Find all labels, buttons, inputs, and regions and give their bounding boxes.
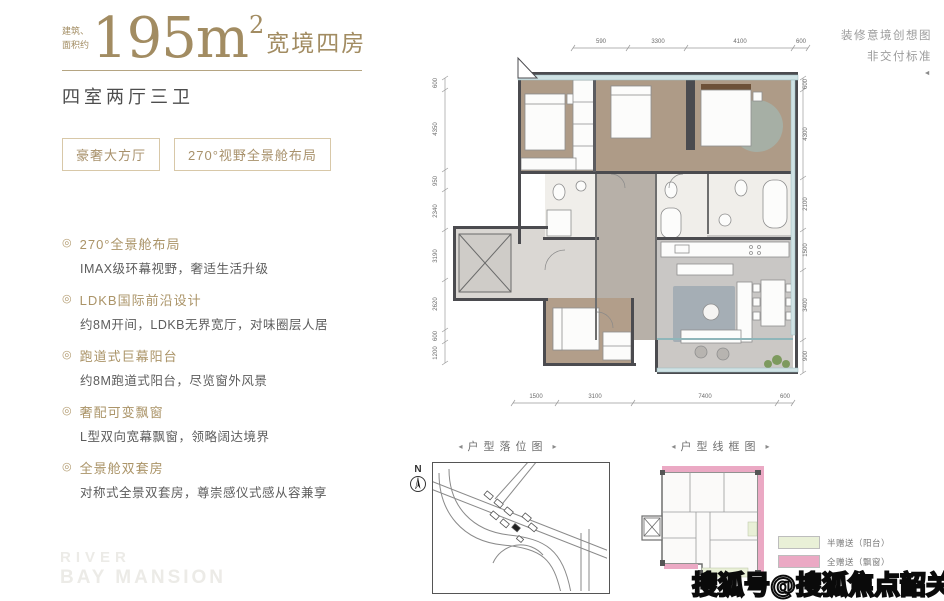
brand-watermark: RIVER BAY MANSION bbox=[60, 549, 226, 590]
compass-icon: N bbox=[408, 464, 428, 498]
dim-label: 590 bbox=[586, 39, 616, 45]
dim-label: 7400 bbox=[690, 394, 720, 400]
feature-item: ◎270°全景舱布局 IMAX级环幕视野，奢适生活升级 bbox=[62, 234, 362, 277]
bullet-icon: ◎ bbox=[62, 294, 73, 305]
gift-bay-window-strip bbox=[662, 466, 760, 472]
area-value: 195m2 bbox=[92, 12, 262, 65]
floor-plan-drawing bbox=[425, 30, 815, 445]
legend-label: 半赠送（阳台） bbox=[827, 537, 890, 549]
disclaimer-line2: 非交付标准 bbox=[841, 47, 932, 68]
bullet-icon: ◎ bbox=[62, 462, 73, 473]
bullet-icon: ◎ bbox=[62, 350, 73, 361]
feature-title: 奢配可变飘窗 bbox=[80, 402, 164, 421]
wireframe-panel-title: ◂户型线框图▸ bbox=[628, 438, 813, 454]
dim-label: 600 bbox=[786, 39, 816, 45]
compass-label: N bbox=[408, 464, 428, 475]
area-note-line2: 面积约 bbox=[62, 39, 89, 53]
disclaimer-line1: 装修意境创想图 bbox=[841, 26, 932, 47]
location-map-panel: ◂户型落位图▸ N bbox=[405, 438, 610, 594]
disclaimer-mark-icon: ◄ bbox=[841, 68, 932, 81]
gift-bay-window-strip bbox=[758, 466, 764, 574]
tag-row: 豪奢大方厅 270°视野全景舱布局 bbox=[62, 138, 362, 171]
entry-flag bbox=[518, 58, 537, 78]
elevator-shaft bbox=[459, 234, 511, 292]
feature-item: ◎全景舱双套房 对称式全景双套房，尊崇感仪式感从容兼享 bbox=[62, 458, 362, 501]
right-arrow-icon: ▸ bbox=[553, 442, 557, 451]
feature-desc: 约8M开间，LDKB无界宽厅，对味圈层人居 bbox=[80, 314, 362, 333]
area-header: 建筑、 面积约 195m2 宽境四房 bbox=[62, 12, 362, 65]
dim-label: 4100 bbox=[725, 39, 755, 45]
right-arrow-icon: ▸ bbox=[766, 442, 770, 451]
dim-label: 900 bbox=[803, 341, 809, 371]
feature-list: ◎270°全景舱布局 IMAX级环幕视野，奢适生活升级 ◎LDKB国际前沿设计 … bbox=[62, 234, 362, 501]
brand-line1: RIVER bbox=[60, 549, 226, 567]
brand-line2: BAY MANSION bbox=[60, 567, 226, 590]
area-exponent: 2 bbox=[249, 11, 263, 39]
sohu-watermark: 搜狐号@搜狐焦点韶关站 bbox=[692, 565, 944, 601]
dim-label: 3190 bbox=[433, 241, 439, 271]
flyer-canvas: 建筑、 面积约 195m2 宽境四房 四室两厅三卫 豪奢大方厅 270°视野全景… bbox=[0, 0, 944, 601]
rooms-line: 四室两厅三卫 bbox=[62, 83, 362, 109]
map-panel-title: ◂户型落位图▸ bbox=[405, 438, 610, 454]
area-note: 建筑、 面积约 bbox=[62, 25, 89, 52]
left-arrow-icon: ◂ bbox=[671, 442, 675, 451]
floor-plan: 590 3300 4100 600 600 4350 950 2340 3190… bbox=[425, 30, 815, 445]
dim-label: 4300 bbox=[803, 119, 809, 149]
legend-swatch-green bbox=[778, 536, 820, 549]
bullet-icon: ◎ bbox=[62, 238, 73, 249]
dim-label: 1500 bbox=[803, 235, 809, 265]
dim-label: 600 bbox=[770, 394, 800, 400]
feature-desc: 约8M跑道式阳台，尽览窗外风景 bbox=[80, 370, 362, 389]
disclaimer: 装修意境创想图 非交付标准 ◄ bbox=[841, 26, 932, 81]
feature-item: ◎跑道式巨幕阳台 约8M跑道式阳台，尽览窗外风景 bbox=[62, 346, 362, 389]
legend-row: 半赠送（阳台） bbox=[778, 536, 940, 549]
feature-item: ◎奢配可变飘窗 L型双向宽幕飘窗，领略阔达境界 bbox=[62, 402, 362, 445]
feature-title-row: ◎跑道式巨幕阳台 bbox=[62, 346, 362, 365]
info-column: 建筑、 面积约 195m2 宽境四房 四室两厅三卫 豪奢大方厅 270°视野全景… bbox=[62, 12, 362, 514]
feature-title: 全景舱双套房 bbox=[80, 458, 164, 477]
dim-label: 2340 bbox=[433, 196, 439, 226]
dim-label: 3400 bbox=[803, 290, 809, 320]
dim-label: 600 bbox=[433, 68, 439, 98]
dim-label: 2620 bbox=[433, 289, 439, 319]
dim-label: 1500 bbox=[521, 394, 551, 400]
location-map bbox=[432, 462, 610, 594]
feature-desc: IMAX级环幕视野，奢适生活升级 bbox=[80, 258, 362, 277]
feature-item: ◎LDKB国际前沿设计 约8M开间，LDKB无界宽厅，对味圈层人居 bbox=[62, 290, 362, 333]
feature-title-row: ◎全景舱双套房 bbox=[62, 458, 362, 477]
tag-270-view: 270°视野全景舱布局 bbox=[174, 138, 331, 171]
area-title: 宽境四房 bbox=[266, 24, 366, 58]
feature-title: LDKB国际前沿设计 bbox=[80, 290, 202, 309]
dim-label: 4350 bbox=[433, 114, 439, 144]
bullet-icon: ◎ bbox=[62, 406, 73, 417]
feature-desc: L型双向宽幕飘窗，领略阔达境界 bbox=[80, 426, 362, 445]
dim-label: 1200 bbox=[433, 338, 439, 368]
left-arrow-icon: ◂ bbox=[458, 442, 462, 451]
dim-label: 2100 bbox=[803, 189, 809, 219]
map-drawing bbox=[433, 463, 607, 591]
feature-title-row: ◎LDKB国际前沿设计 bbox=[62, 290, 362, 309]
feature-title: 跑道式巨幕阳台 bbox=[80, 346, 178, 365]
feature-title-row: ◎奢配可变飘窗 bbox=[62, 402, 362, 421]
dim-label: 3100 bbox=[580, 394, 610, 400]
gift-balcony-strip bbox=[748, 522, 757, 536]
area-note-line1: 建筑、 bbox=[62, 25, 89, 39]
dim-label: 3300 bbox=[643, 39, 673, 45]
feature-title-row: ◎270°全景舱布局 bbox=[62, 234, 362, 253]
dim-label: 950 bbox=[433, 166, 439, 196]
dim-label: 600 bbox=[803, 69, 809, 99]
feature-desc: 对称式全景双套房，尊崇感仪式感从容兼享 bbox=[80, 482, 362, 501]
feature-title: 270°全景舱布局 bbox=[80, 234, 181, 253]
tag-luxury-hall: 豪奢大方厅 bbox=[62, 138, 160, 171]
